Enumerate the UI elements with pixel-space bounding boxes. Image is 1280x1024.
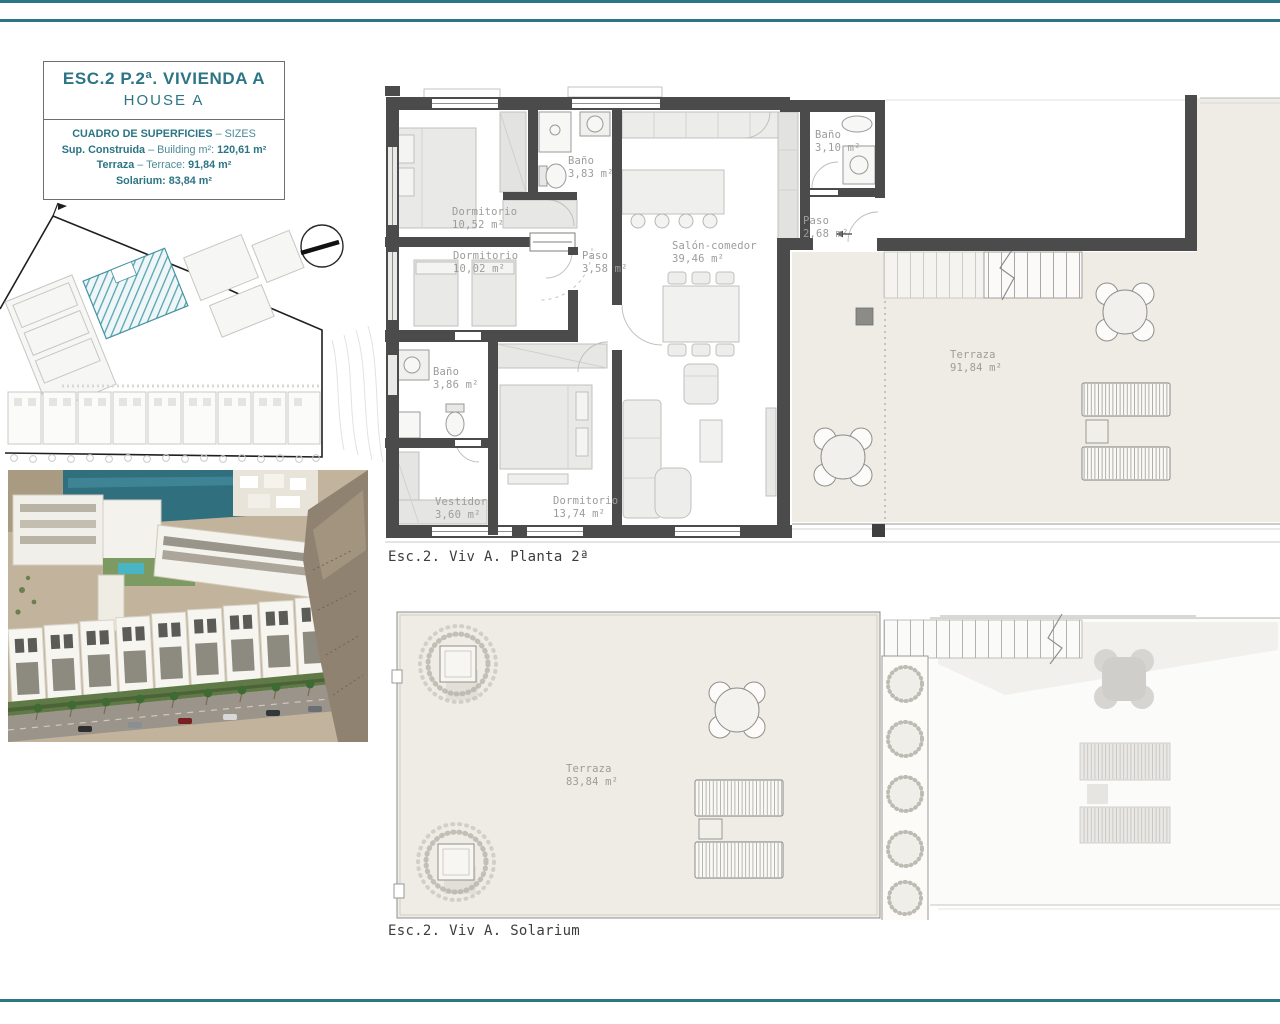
surface-row-terrace: Terraza – Terrace: 91,84 m² xyxy=(48,158,280,174)
room-area-paso-1: 3,58 m² xyxy=(582,263,628,275)
sheet-subtitle: HOUSE A xyxy=(48,92,280,109)
room-area-salon: 39,46 m² xyxy=(672,253,724,265)
room-label-vestidor: Vestidor xyxy=(435,496,487,508)
sheet-title: ESC.2 P.2ª. VIVIENDA A xyxy=(48,69,280,89)
solarium-labels: Terraza 83,84 m² xyxy=(566,763,618,788)
room-label-solarium-terraza: Terraza xyxy=(566,763,612,775)
terrace-stairs xyxy=(884,250,1082,300)
plan-sheet: ESC.2 P.2ª. VIVIENDA A HOUSE A CUADRO DE… xyxy=(0,0,1280,1024)
caption-planta2: Esc.2. Viv A. Planta 2ª xyxy=(388,549,589,565)
site-buildings xyxy=(5,198,318,411)
room-area-vestidor: 3,60 m² xyxy=(435,509,481,521)
site-plan xyxy=(0,198,385,470)
room-area-solarium-terraza: 83,84 m² xyxy=(566,776,618,788)
room-label-dormitorio-3: Dormitorio xyxy=(553,495,618,507)
solarium-table-set xyxy=(709,682,765,738)
room-label-dormitorio-1: Dormitorio xyxy=(452,206,517,218)
top-edge-accent-line xyxy=(0,0,1280,3)
room-area-terraza: 91,84 m² xyxy=(950,362,1002,374)
floorplan-solarium: Terraza 83,84 m² xyxy=(390,598,1280,920)
room-label-bano-3: Baño xyxy=(433,366,459,378)
north-arrow-icon xyxy=(301,225,343,267)
floorplan-planta2: Dormitorio 10,52 m² Baño 3,83 m² Dormito… xyxy=(385,85,1280,545)
footer-accent-line xyxy=(0,999,1280,1002)
room-label-paso-2: Paso xyxy=(803,215,829,227)
room-label-salon: Salón-comedor xyxy=(672,240,757,252)
surface-table-header: CUADRO DE SUPERFICIES – SIZES xyxy=(48,127,280,143)
surface-table: CUADRO DE SUPERFICIES – SIZES Sup. Const… xyxy=(44,120,284,199)
room-label-terraza: Terraza xyxy=(950,349,996,361)
room-area-dormitorio-2: 10,02 m² xyxy=(453,263,505,275)
site-contours xyxy=(332,326,383,462)
room-label-bano-2: Baño xyxy=(815,129,841,141)
room-label-bano-1: Baño xyxy=(568,155,594,167)
surface-row-solarium: Solarium: 83,84 m² xyxy=(48,174,280,190)
neighbour-solarium xyxy=(930,618,1280,909)
planter-strip xyxy=(882,656,928,920)
caption-solarium: Esc.2. Viv A. Solarium xyxy=(388,923,580,939)
terrace-table-set-2 xyxy=(1096,283,1154,341)
room-area-bano-1: 3,83 m² xyxy=(568,168,614,180)
room-area-bano-2: 3,10 m² xyxy=(815,142,861,154)
room-label-paso-1: Paso xyxy=(582,250,608,262)
room-area-dormitorio-1: 10,52 m² xyxy=(452,219,504,231)
room-area-bano-3: 3,86 m² xyxy=(433,379,479,391)
terrace-table-set-1 xyxy=(814,428,872,486)
title-block: ESC.2 P.2ª. VIVIENDA A HOUSE A CUADRO DE… xyxy=(43,61,285,200)
site-highlighted-building xyxy=(83,248,188,338)
neighbour-table-set xyxy=(1094,649,1154,709)
room-area-paso-2: 2,68 m² xyxy=(803,228,849,240)
room-area-dormitorio-3: 13,74 m² xyxy=(553,508,605,520)
room-label-dormitorio-2: Dormitorio xyxy=(453,250,518,262)
surface-row-building: Sup. Construida – Building m²: 120,61 m² xyxy=(48,143,280,159)
header-accent-line xyxy=(0,19,1280,22)
aerial-photo xyxy=(8,470,368,742)
site-townhouse-row xyxy=(8,392,320,444)
